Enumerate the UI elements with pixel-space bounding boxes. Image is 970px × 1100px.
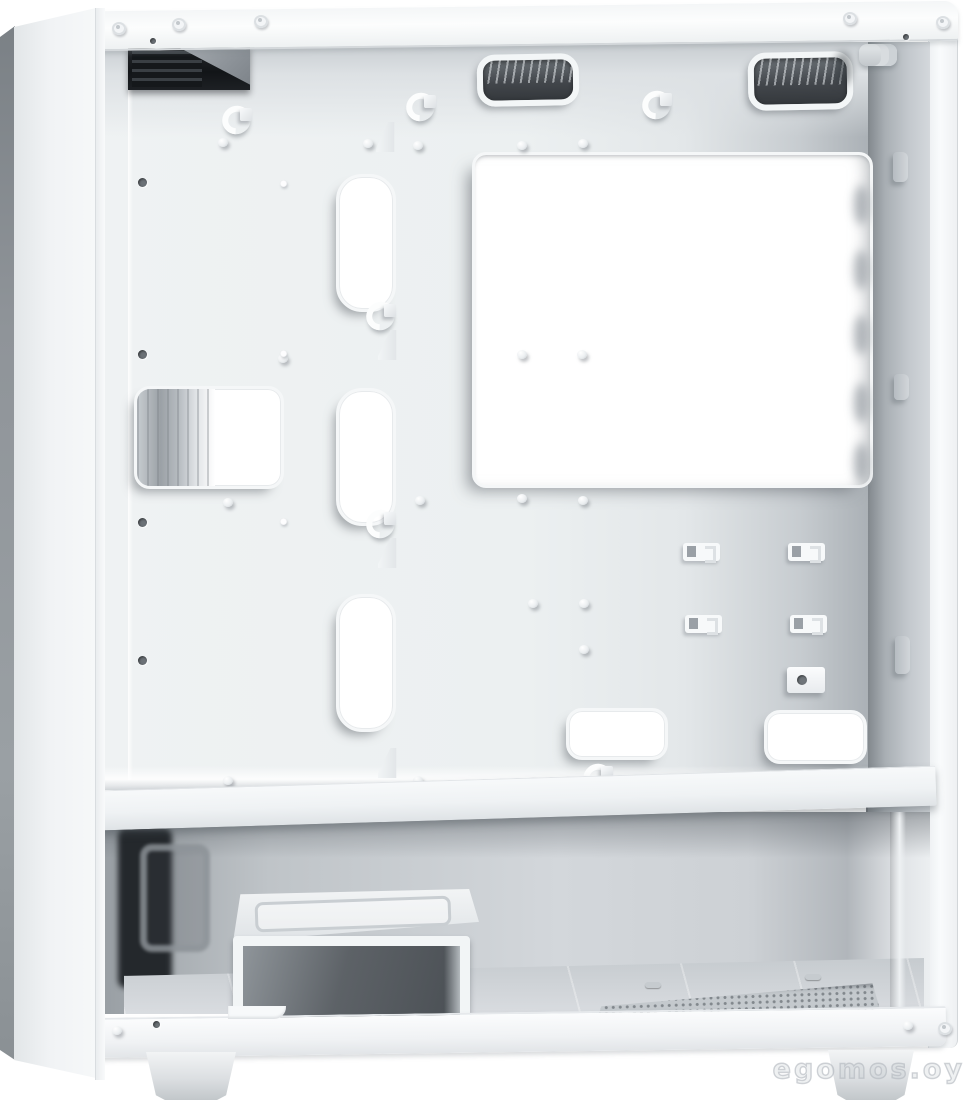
- standoff-screw: [578, 139, 588, 148]
- rail-pilot-hole: [150, 38, 156, 44]
- ssd-mount-clip: [683, 543, 720, 561]
- bottom-cable-pass-through: [764, 710, 867, 764]
- front-frame-edge: [95, 8, 105, 1080]
- cable-routing-slot: [336, 174, 396, 312]
- standoff-screw: [577, 350, 587, 359]
- mounting-hole: [153, 1021, 160, 1028]
- ssd-mount-clip: [685, 615, 722, 633]
- cable-tie-anchor: [366, 300, 396, 324]
- cable-routing-slot: [336, 388, 396, 526]
- standoff-screw: [223, 776, 233, 785]
- pcie-bracket-blur: [854, 443, 869, 483]
- cpu-cooler-backplate-cutout: [472, 152, 873, 488]
- rear-wall-tab: [894, 374, 909, 400]
- standoff-screw: [517, 350, 527, 359]
- standoff-screw: [517, 141, 527, 150]
- tray-front-fold: [128, 60, 133, 780]
- cable-routing-slot: [336, 594, 396, 732]
- ssd-mount-clip: [788, 543, 825, 561]
- front-panel-side-edge: [0, 0, 15, 1100]
- front-io-module: [128, 45, 250, 90]
- alignment-pin-hole: [280, 518, 287, 525]
- standoff-screw: [223, 498, 233, 507]
- thumbscrew-standoff: [859, 44, 897, 66]
- pcie-bracket-blur: [854, 250, 869, 290]
- standoff-screw: [112, 1026, 122, 1035]
- alignment-pin-hole: [280, 180, 287, 187]
- psu-compartment: [104, 812, 930, 1014]
- standoff-screw: [517, 494, 527, 503]
- mounting-hole: [138, 178, 147, 187]
- pc-case-product-photo: egomos.oy: [0, 0, 970, 1100]
- front-cable-cutout: [134, 386, 284, 489]
- standoff-screw: [218, 138, 228, 147]
- frame-rivet: [843, 12, 857, 25]
- screw-block: [787, 667, 825, 693]
- front-fan-glimpse: [137, 389, 215, 486]
- standoff-screw: [903, 1021, 913, 1030]
- standoff-screw: [363, 139, 373, 148]
- cable-tie-anchor: [642, 89, 672, 113]
- standoff-screw: [579, 645, 589, 654]
- pcie-bracket-blur: [854, 315, 869, 355]
- case-foot: [146, 1052, 236, 1100]
- rear-frame-edge: [928, 18, 958, 1048]
- standoff-screw: [579, 599, 589, 608]
- bottom-rail-step: [228, 1006, 286, 1019]
- standoff-screw: [528, 599, 538, 608]
- frame-rivet: [172, 18, 186, 31]
- pcie-bracket-blur: [854, 383, 869, 423]
- front-fan-frame: [140, 844, 210, 952]
- frame-rivet: [938, 1022, 952, 1035]
- rear-wall-tab: [895, 636, 910, 674]
- rear-wall-tab: [893, 152, 908, 182]
- front-panel-face: [14, 0, 96, 1100]
- standoff-screw: [578, 496, 588, 505]
- mounting-hole: [138, 518, 147, 527]
- floor-latch: [805, 974, 821, 980]
- store-watermark: egomos.oy: [760, 1055, 965, 1085]
- frame-rivet: [936, 16, 950, 29]
- rear-inner-corner: [890, 812, 906, 1012]
- io-module-connectors: [132, 51, 202, 87]
- rear-fan-mount-hole: [834, 52, 852, 86]
- top-vent-opening-icon: [477, 53, 580, 107]
- mounting-hole: [138, 350, 147, 359]
- frame-rivet: [112, 22, 126, 35]
- standoff-screw: [413, 141, 423, 150]
- mounting-hole: [138, 656, 147, 665]
- cable-tie-anchor: [366, 508, 396, 532]
- bottom-cable-pass-through: [566, 708, 668, 760]
- cable-tie-anchor: [222, 104, 252, 128]
- frame-rivet: [254, 15, 268, 28]
- standoff-screw: [415, 496, 425, 505]
- ssd-mount-clip: [790, 615, 827, 633]
- rail-pilot-hole: [903, 34, 909, 40]
- front-panel: [0, 0, 104, 1100]
- floor-latch: [645, 982, 661, 988]
- pcie-bracket-blur: [854, 185, 869, 225]
- cable-tie-anchor: [406, 91, 436, 115]
- alignment-pin-hole: [280, 350, 287, 357]
